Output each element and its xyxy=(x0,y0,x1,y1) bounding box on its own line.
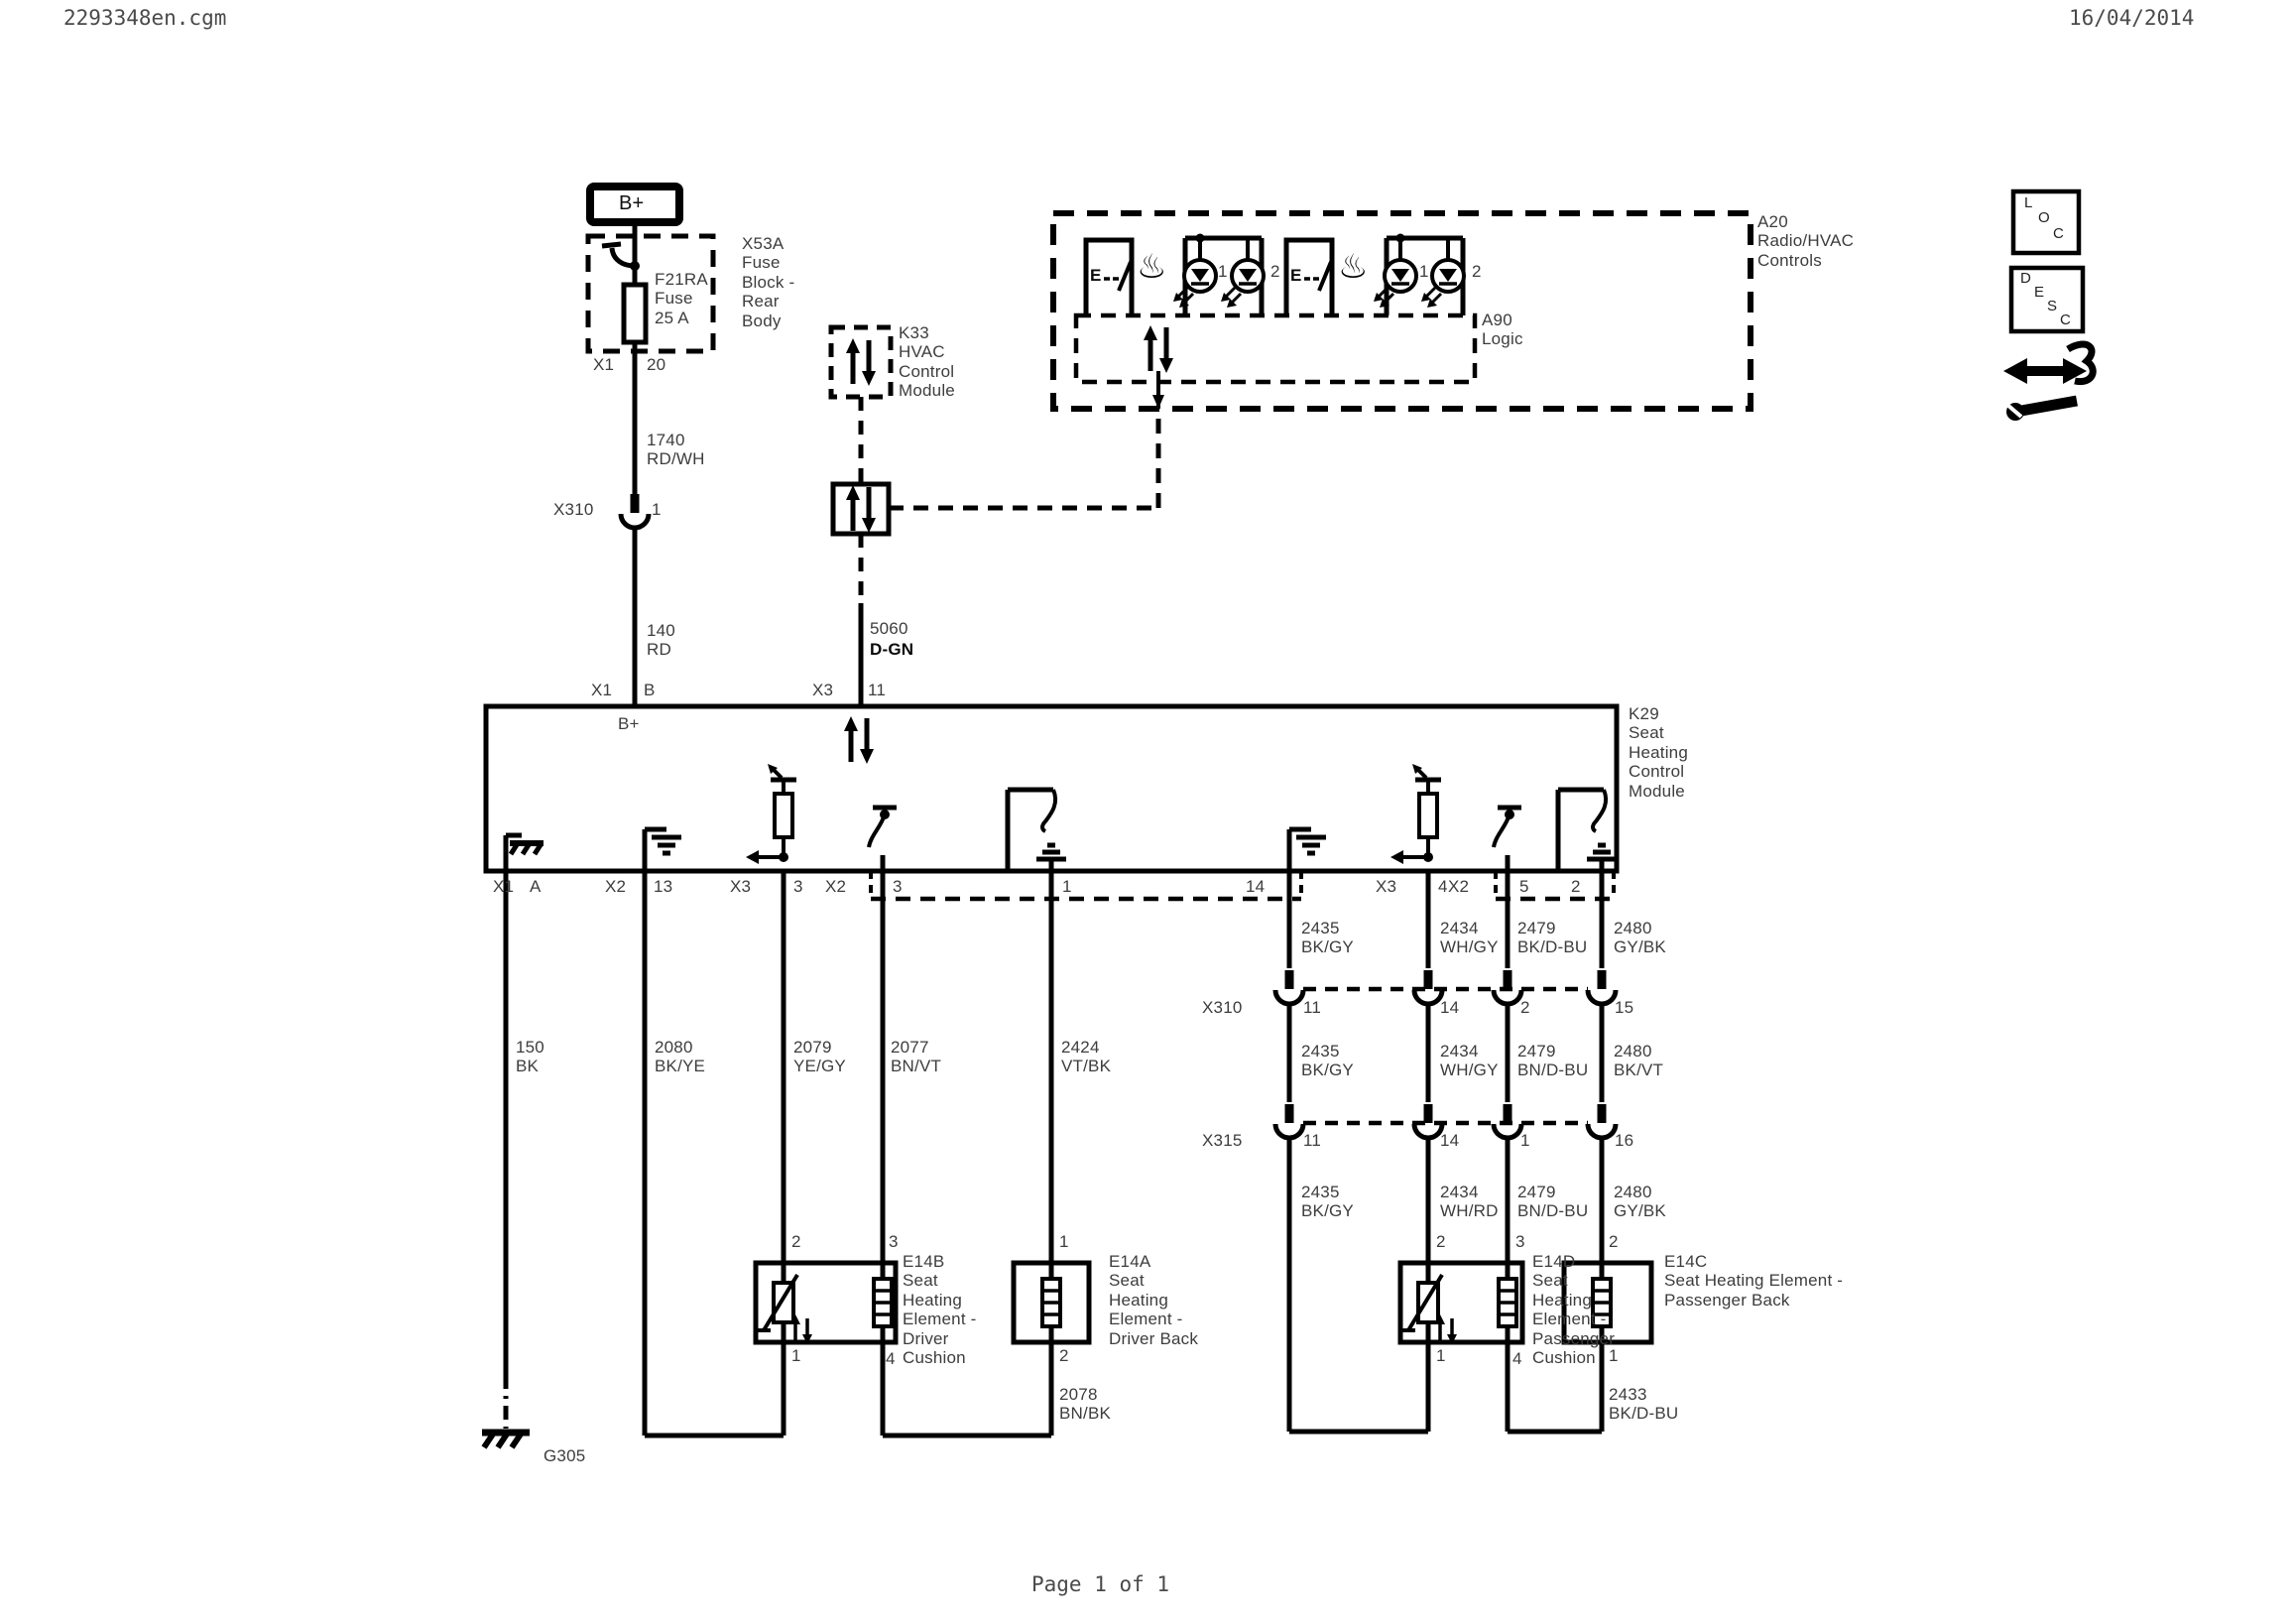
wire-150-label: 150 BK xyxy=(516,1038,544,1076)
pin-x3-11-connector: X3 xyxy=(812,681,833,699)
wire-140-label: 140 RD xyxy=(647,621,675,660)
x310-pin-14: 14 xyxy=(1440,998,1459,1017)
a20-driver-led-1-label: 1 xyxy=(1218,262,1228,281)
heating-element-icon xyxy=(1499,1279,1516,1326)
switch-to-ground-icon xyxy=(1008,790,1066,871)
fuse-label: F21RA Fuse 25 A xyxy=(655,270,708,327)
wiring-diagram-page: 2293348en.cgm 16/04/2014 Page 1 of 1 B+X… xyxy=(0,0,2296,1624)
k29-pin-x2-13: 13 xyxy=(654,877,672,896)
e14c-label: E14C Seat Heating Element - Passenger Ba… xyxy=(1664,1252,1843,1310)
switch-output-icon xyxy=(869,808,897,871)
x315-pin-14: 14 xyxy=(1440,1131,1459,1150)
k33-label: K33 HVAC Control Module xyxy=(899,323,955,401)
k29-pin-x2-3: 3 xyxy=(893,877,903,896)
wire-2435-b: 2435 BK/GY xyxy=(1301,1042,1354,1080)
wire-2480-a: 2480 GY/BK xyxy=(1614,919,1666,957)
k29-pin-x2-5: 5 xyxy=(1519,877,1529,896)
pin-x1-20-connector: X1 xyxy=(593,355,614,374)
connector-x310-b-icon xyxy=(621,494,649,528)
e14b-box xyxy=(756,1263,896,1344)
e14d-label: E14D Seat Heating Element - Passenger Cu… xyxy=(1532,1252,1615,1367)
wire-2479-c: 2479 BN/D-BU xyxy=(1517,1183,1588,1221)
serial-data-icon xyxy=(846,338,876,386)
switch-to-ground-icon xyxy=(1558,790,1617,871)
wire-2079-label: 2079 YE/GY xyxy=(793,1038,846,1076)
connector-x310-icon xyxy=(1275,970,1303,1004)
a90-logic-box xyxy=(1076,315,1475,382)
k29-pin-x1-a: A xyxy=(530,877,542,896)
wire-2433-label: 2433 BK/D-BU xyxy=(1609,1385,1678,1424)
a20-label: A20 Radio/HVAC Controls xyxy=(1757,212,1854,270)
x315-pin-16: 16 xyxy=(1615,1131,1633,1150)
k29-box xyxy=(486,706,1617,871)
pin-x1-20-number: 20 xyxy=(647,355,665,374)
e14b-pin-1: 1 xyxy=(791,1346,801,1365)
loc-letter-o: O xyxy=(2038,209,2050,226)
loc-letter-c: C xyxy=(2053,225,2064,242)
k29-pin-x2-13-conn: X2 xyxy=(605,877,626,896)
x315-pin-1: 1 xyxy=(1520,1131,1530,1150)
connector-x310-b-pin: 1 xyxy=(652,500,662,519)
fuse-block-label: X53A Fuse Block - Rear Body xyxy=(742,234,794,330)
connector-x310-icon xyxy=(1588,970,1616,1004)
heating-element-icon xyxy=(874,1279,892,1326)
wire-2480-b: 2480 BK/VT xyxy=(1614,1042,1663,1080)
k29-bplus-label: B+ xyxy=(618,714,640,733)
loc-letter-l: L xyxy=(2024,194,2033,211)
e14a-pin-2: 2 xyxy=(1059,1346,1069,1365)
pin-x1-b-connector: X1 xyxy=(591,681,612,699)
desc-letter-e: E xyxy=(2034,284,2044,301)
page-footer: Page 1 of 1 xyxy=(1031,1572,1169,1597)
connector-x310-b-label: X310 xyxy=(553,500,594,519)
e14b-pin-4: 4 xyxy=(886,1349,896,1368)
wire-2424-label: 2424 VT/BK xyxy=(1061,1038,1111,1076)
k29-pin-x2-5-conn: X2 xyxy=(1448,877,1469,896)
e14b-pin-3: 3 xyxy=(889,1232,899,1251)
led-icon xyxy=(1374,260,1416,308)
k29-pin-2: 2 xyxy=(1571,877,1581,896)
page-title: 2293348en.cgm xyxy=(63,6,226,31)
earth-ground-icon xyxy=(1289,829,1326,871)
wire-2480-c: 2480 GY/BK xyxy=(1614,1183,1666,1221)
x310-pin-11: 11 xyxy=(1303,998,1321,1017)
x2-connector-dashes xyxy=(871,871,1614,899)
a20-pass-led-2-label: 2 xyxy=(1472,262,1482,281)
x310-pin-15: 15 xyxy=(1615,998,1633,1017)
ground-g305-icon xyxy=(482,1433,530,1447)
desc-letter-c: C xyxy=(2060,312,2071,328)
wire-2080 xyxy=(645,871,784,1436)
k33-box xyxy=(831,327,891,397)
wire-1740-label: 1740 RD/WH xyxy=(647,431,705,469)
connector-x315-label: X315 xyxy=(1202,1131,1243,1150)
wire-2434-c: 2434 WH/RD xyxy=(1440,1183,1499,1221)
k29-pin-x1-a-conn: X1 xyxy=(493,877,514,896)
k29-label: K29 Seat Heating Control Module xyxy=(1629,704,1688,801)
x310-pin-2: 2 xyxy=(1520,998,1530,1017)
k29-pin-x3-3-conn: X3 xyxy=(730,877,751,896)
a20-pass-switch-e: E xyxy=(1290,266,1302,285)
wire-2434-b: 2434 WH/GY xyxy=(1440,1042,1499,1080)
serial-data-wire xyxy=(833,397,1158,706)
a20-driver-led-2-label: 2 xyxy=(1270,262,1280,281)
fuse-icon xyxy=(624,285,646,342)
connector-x315-icon xyxy=(1588,1104,1616,1138)
a90-label: A90 Logic xyxy=(1482,311,1523,349)
wire-2077-label: 2077 BN/VT xyxy=(891,1038,941,1076)
battery-terminal-label: B+ xyxy=(619,192,644,215)
a90-serial-icon xyxy=(1144,325,1173,373)
k29-pin-x3-3: 3 xyxy=(793,877,803,896)
e14a-label: E14A Seat Heating Element - Driver Back xyxy=(1109,1252,1198,1348)
connector-x315-icon xyxy=(1275,1104,1303,1138)
wire-5060-number: 5060 xyxy=(870,619,908,638)
e14a-pin-1: 1 xyxy=(1059,1232,1069,1251)
e14d-pin-2: 2 xyxy=(1436,1232,1446,1251)
wire-2479-a: 2479 BK/D-BU xyxy=(1517,919,1587,957)
led-icon xyxy=(1173,260,1216,308)
e14c-pin-1: 1 xyxy=(1609,1346,1619,1365)
a20-pass-led-1-label: 1 xyxy=(1419,262,1429,281)
a20-driver-seat-icon: ♨ xyxy=(1137,250,1167,284)
wire-2434-a: 2434 WH/GY xyxy=(1440,919,1499,957)
k29-pin-x2-3-conn: X2 xyxy=(825,877,846,896)
x315-pin-11: 11 xyxy=(1303,1131,1321,1150)
sensor-input-icon xyxy=(1390,764,1441,864)
e14b-pin-2: 2 xyxy=(791,1232,801,1251)
desc-letter-s: S xyxy=(2047,298,2057,314)
connector-x310-label: X310 xyxy=(1202,998,1243,1017)
pin-x1-b-number: B xyxy=(644,681,656,699)
serial-data-icon xyxy=(844,716,874,764)
wire-5060-color: D-GN xyxy=(870,640,913,659)
wire-2435-a: 2435 BK/GY xyxy=(1301,919,1354,957)
wire-2435-c: 2435 BK/GY xyxy=(1301,1183,1354,1221)
pin-x3-11-number: 11 xyxy=(868,681,886,699)
a20-driver-switch-e: E xyxy=(1090,266,1102,285)
wire-2479-b: 2479 BN/D-BU xyxy=(1517,1042,1588,1080)
ground-g305-label: G305 xyxy=(544,1446,585,1465)
e14d-pin-1: 1 xyxy=(1436,1346,1446,1365)
e14d-pin-4: 4 xyxy=(1512,1349,1522,1368)
e14c-pin-2: 2 xyxy=(1609,1232,1619,1251)
e14d-pin-3: 3 xyxy=(1515,1232,1525,1251)
k29-pin-x3-4-conn: X3 xyxy=(1376,877,1396,896)
desc-letter-d: D xyxy=(2020,270,2031,287)
connector-repair-icon xyxy=(2003,344,2093,421)
chassis-ground-icon xyxy=(506,835,544,871)
earth-ground-icon xyxy=(645,829,681,871)
k29-pin-1: 1 xyxy=(1062,877,1072,896)
wire-2080-label: 2080 BK/YE xyxy=(655,1038,705,1076)
wire-150 xyxy=(482,871,530,1447)
switch-output-icon xyxy=(1494,808,1521,871)
e14b-label: E14B Seat Heating Element - Driver Cushi… xyxy=(903,1252,977,1367)
k29-pin-x3-4: 4 xyxy=(1438,877,1448,896)
k29-pin-14: 14 xyxy=(1246,877,1265,896)
wiring-diagram-graphics xyxy=(0,0,2296,1624)
heating-element-icon xyxy=(1042,1279,1060,1326)
wire-2078-label: 2078 BN/BK xyxy=(1059,1385,1111,1424)
serial-link-box xyxy=(833,484,889,534)
a20-pass-seat-icon: ♨ xyxy=(1338,250,1369,284)
e14d-box xyxy=(1400,1263,1522,1344)
page-date: 16/04/2014 xyxy=(2069,6,2194,31)
sensor-input-icon xyxy=(746,764,796,864)
